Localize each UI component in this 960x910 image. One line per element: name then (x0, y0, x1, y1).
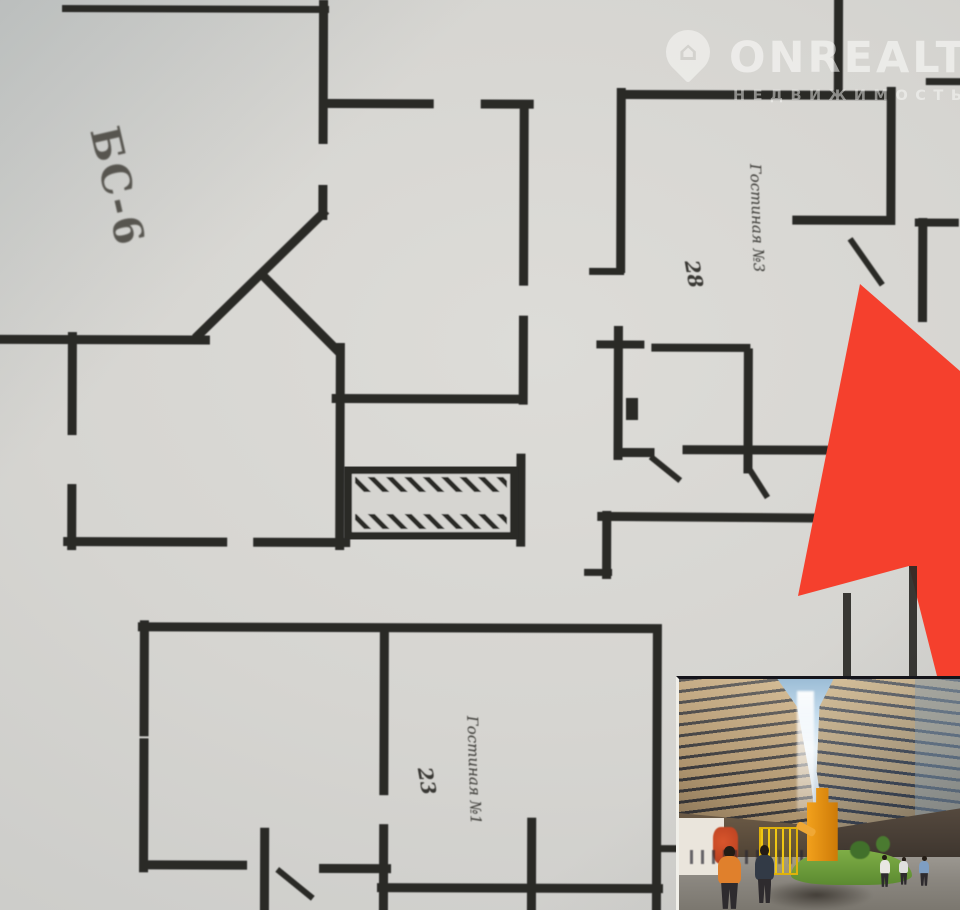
photo-person (918, 856, 931, 886)
photo-person-navy-shirt (753, 845, 775, 903)
photo-tree (850, 841, 870, 859)
photo-inset (676, 676, 960, 910)
photo-person (879, 855, 892, 887)
photo-tree (876, 836, 890, 852)
photo-sun-glare (797, 691, 814, 811)
photo-person-orange-shirt (716, 846, 744, 908)
photo-person (898, 857, 909, 885)
listing-image: БС-6 Гостиная №3 28 Гостиная №1 23 ⌂ ONR… (0, 0, 960, 910)
